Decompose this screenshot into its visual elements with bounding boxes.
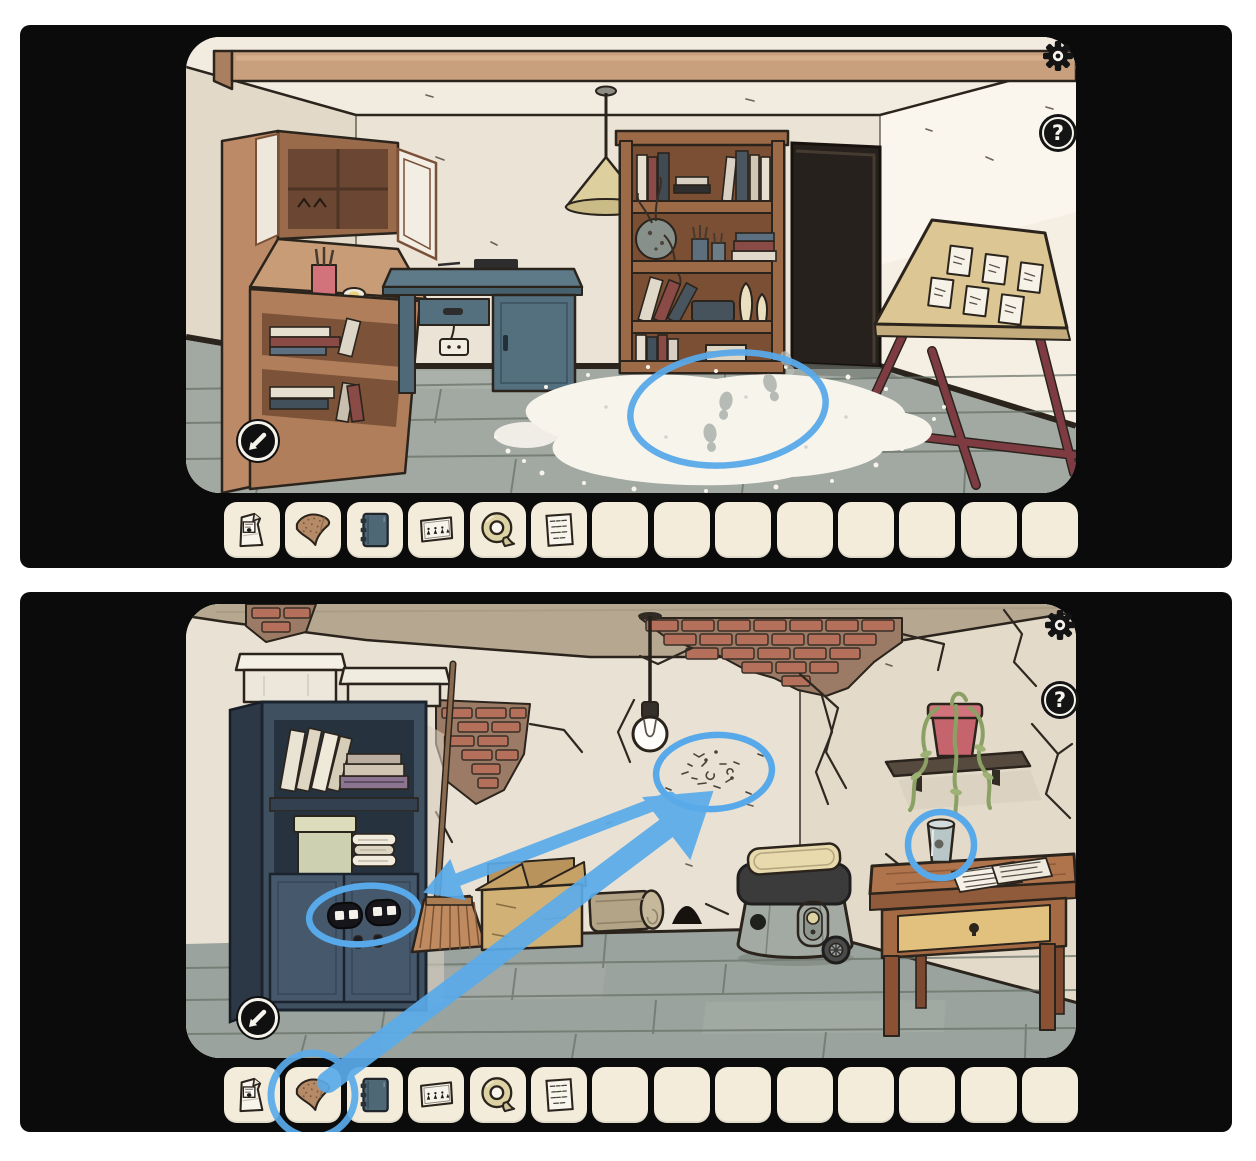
inventory-slot-13[interactable] xyxy=(961,502,1017,558)
settings-button[interactable] xyxy=(1040,605,1080,645)
bookshelf[interactable] xyxy=(616,131,788,373)
inventory-slot-14[interactable] xyxy=(1022,502,1078,558)
storage-cabinet[interactable] xyxy=(230,654,450,1022)
flour-bag-icon xyxy=(229,1072,275,1118)
inventory-slot-10[interactable] xyxy=(777,502,833,558)
notebook-icon xyxy=(352,507,398,553)
inventory-slot-14[interactable] xyxy=(1022,1067,1078,1123)
inventory-slot-5[interactable] xyxy=(470,1067,526,1123)
inventory-slot-8[interactable] xyxy=(654,502,710,558)
inventory-slot-12[interactable] xyxy=(899,1067,955,1123)
question-mark-icon: ? xyxy=(1052,123,1064,144)
help-button[interactable]: ? xyxy=(1041,681,1079,719)
note-paper-icon xyxy=(536,1072,582,1118)
inventory-bar xyxy=(224,1067,1078,1123)
inventory-slot-7[interactable] xyxy=(592,502,648,558)
notebook-icon xyxy=(352,1072,398,1118)
sandpaper-icon xyxy=(290,507,336,553)
flour-bag-icon xyxy=(229,507,275,553)
inventory-slot-13[interactable] xyxy=(961,1067,1017,1123)
inventory-slot-3[interactable] xyxy=(347,502,403,558)
inventory-slot-6[interactable] xyxy=(531,502,587,558)
inventory-slot-1[interactable] xyxy=(224,502,280,558)
back-arrow-icon xyxy=(235,995,281,1041)
inventory-slot-8[interactable] xyxy=(654,1067,710,1123)
inventory-bar xyxy=(224,502,1078,558)
back-button[interactable] xyxy=(235,995,281,1041)
rolled-mat[interactable] xyxy=(589,890,664,932)
inventory-slot-4[interactable] xyxy=(408,502,464,558)
cardboard-box[interactable] xyxy=(476,858,586,950)
inventory-slot-3[interactable] xyxy=(347,1067,403,1123)
inventory-slot-4[interactable] xyxy=(408,1067,464,1123)
scene-studio-room[interactable] xyxy=(186,37,1076,493)
inventory-slot-10[interactable] xyxy=(777,1067,833,1123)
inventory-slot-9[interactable] xyxy=(715,502,771,558)
page: ? xyxy=(0,0,1256,1161)
inventory-slot-2[interactable] xyxy=(285,1067,341,1123)
sandpaper-icon xyxy=(290,1072,336,1118)
glass-cup[interactable] xyxy=(928,820,954,863)
inventory-slot-11[interactable] xyxy=(838,502,894,558)
inventory-slot-5[interactable] xyxy=(470,502,526,558)
wall-shelf[interactable] xyxy=(886,752,1042,810)
figures-card-icon xyxy=(413,1072,459,1118)
scene-basement-room[interactable] xyxy=(186,604,1076,1058)
question-mark-icon: ? xyxy=(1054,690,1066,711)
settings-button[interactable] xyxy=(1038,36,1078,76)
vacuum-cleaner[interactable] xyxy=(738,843,854,966)
tape-roll-icon xyxy=(475,1072,521,1118)
inventory-slot-9[interactable] xyxy=(715,1067,771,1123)
gear-icon xyxy=(1040,605,1080,645)
green-box[interactable] xyxy=(294,816,356,874)
figures-card-icon xyxy=(413,507,459,553)
folded-towels[interactable] xyxy=(352,834,396,866)
inventory-slot-11[interactable] xyxy=(838,1067,894,1123)
inventory-slot-7[interactable] xyxy=(592,1067,648,1123)
inventory-slot-6[interactable] xyxy=(531,1067,587,1123)
inventory-slot-2[interactable] xyxy=(285,502,341,558)
back-arrow-icon xyxy=(235,418,281,464)
back-button[interactable] xyxy=(235,418,281,464)
tape-roll-icon xyxy=(475,507,521,553)
panel-studio-room: ? xyxy=(20,25,1232,568)
note-paper-icon xyxy=(536,507,582,553)
inventory-slot-12[interactable] xyxy=(899,502,955,558)
inventory-slot-1[interactable] xyxy=(224,1067,280,1123)
power-outlet[interactable] xyxy=(440,339,468,355)
help-button[interactable]: ? xyxy=(1039,114,1077,152)
panel-basement-room: ? xyxy=(20,592,1232,1132)
gear-icon xyxy=(1038,36,1078,76)
